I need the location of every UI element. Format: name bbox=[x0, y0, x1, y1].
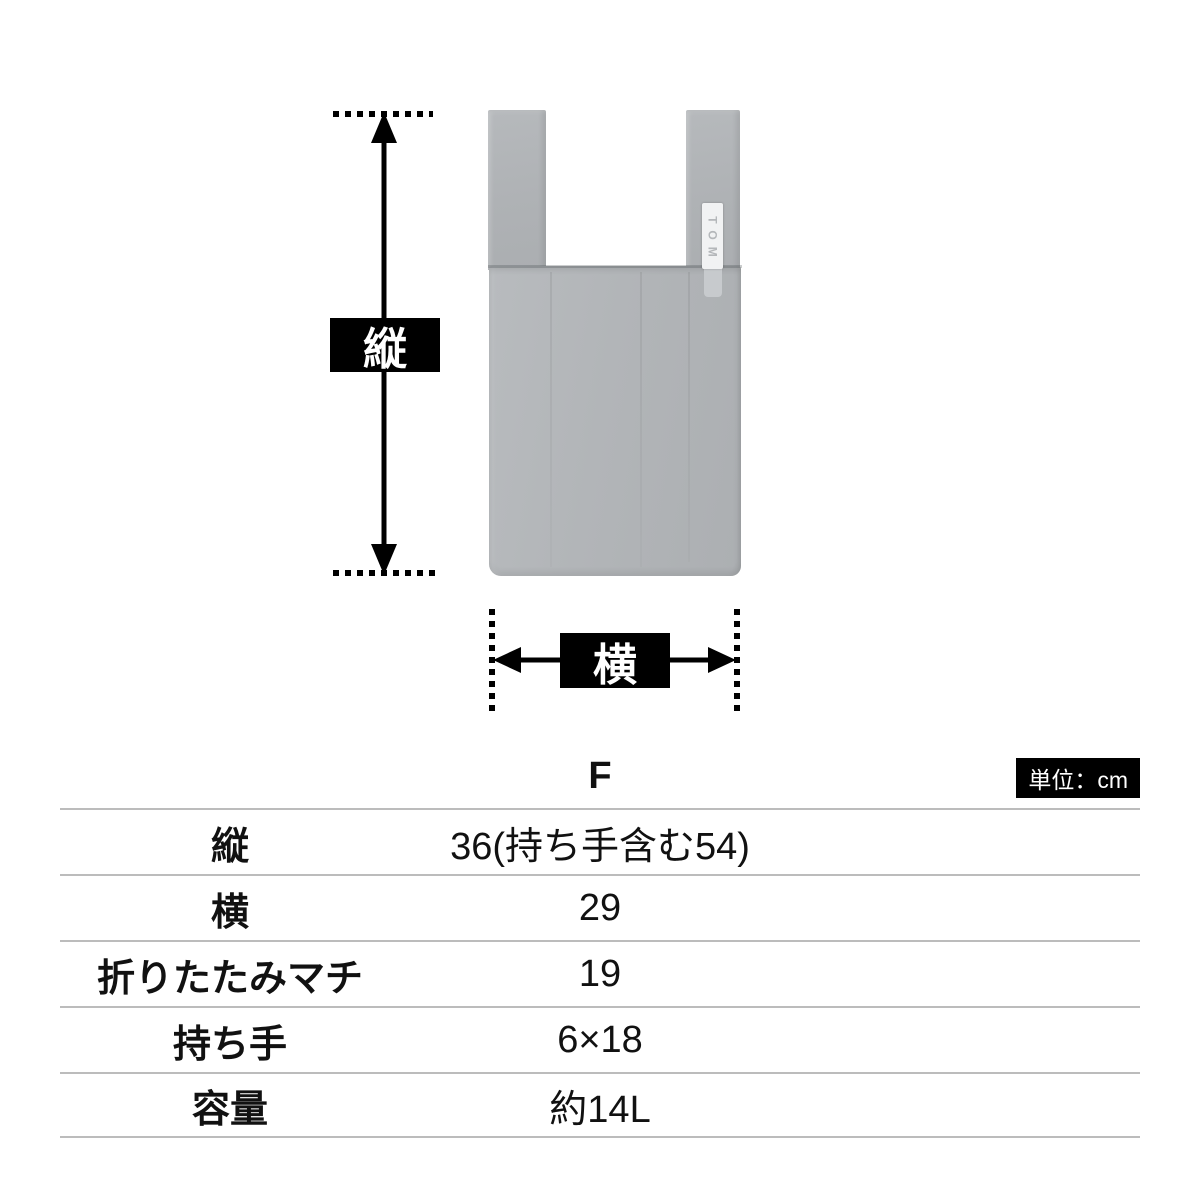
unit-badge: 単位：cm bbox=[1016, 758, 1140, 798]
table-row: 持ち手 6×18 bbox=[60, 1006, 1140, 1072]
width-dimension-label: 横 bbox=[593, 629, 637, 693]
size-table-header: F 単位：cm bbox=[60, 744, 1140, 808]
row-label: 容量 bbox=[60, 1078, 400, 1133]
row-label: 縦 bbox=[60, 815, 400, 870]
size-table: F 単位：cm 縦 36(持ち手含む54) 横 29 折りたたみマチ 19 持ち… bbox=[60, 744, 1140, 1138]
width-arrow-left-head bbox=[493, 647, 521, 673]
table-row: 容量 約14L bbox=[60, 1072, 1140, 1138]
row-label: 持ち手 bbox=[60, 1013, 400, 1068]
row-value: 19 bbox=[400, 953, 800, 996]
row-value: 36(持ち手含む54) bbox=[400, 815, 800, 870]
width-arrow-right-head bbox=[708, 647, 736, 673]
size-column-header: F bbox=[400, 744, 800, 808]
table-row: 横 29 bbox=[60, 874, 1140, 940]
row-value: 6×18 bbox=[400, 1019, 800, 1062]
row-label: 折りたたみマチ bbox=[60, 947, 400, 1002]
row-value: 29 bbox=[400, 887, 800, 930]
product-size-spec: TOM 縦 横 F 単位：cm 縦 36(持ち手含む54) 横 bbox=[0, 0, 1200, 1200]
row-value: 約14L bbox=[400, 1078, 800, 1133]
table-row: 折りたたみマチ 19 bbox=[60, 940, 1140, 1006]
width-dimension-label-box: 横 bbox=[560, 633, 670, 688]
table-row: 縦 36(持ち手含む54) bbox=[60, 808, 1140, 874]
height-dimension-label: 縦 bbox=[363, 313, 407, 377]
height-dimension-label-box: 縦 bbox=[330, 318, 440, 372]
row-label: 横 bbox=[60, 881, 400, 936]
